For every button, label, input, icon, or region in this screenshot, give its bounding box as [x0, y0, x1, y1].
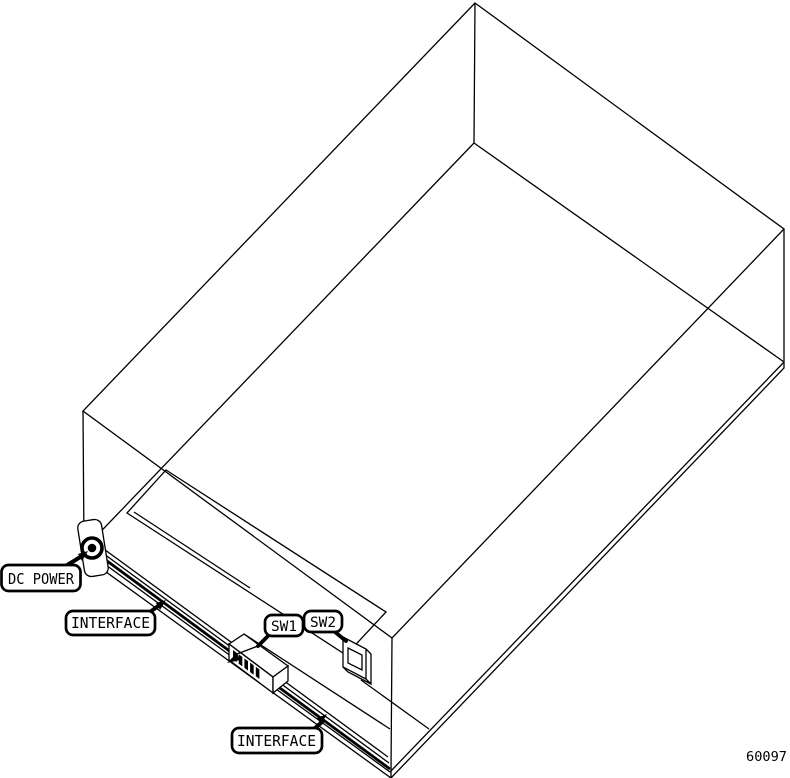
callout-label: INTERFACE	[237, 732, 316, 750]
callout-interface-bottom: INTERFACE	[232, 714, 327, 753]
dc-power-jack-pin	[88, 544, 97, 553]
bottom-detail-line	[361, 680, 429, 729]
recess-panel-outline	[127, 470, 386, 655]
enclosure-wireframe	[83, 3, 784, 778]
switch-sw2	[343, 637, 371, 684]
callout-dc-power: DC POWER	[2, 551, 89, 591]
enclosure-vertical-edges	[83, 3, 784, 772]
callout-sw2: SW2	[304, 611, 346, 641]
callout-label: INTERFACE	[71, 614, 150, 632]
figure-number: 60097	[746, 750, 787, 765]
enclosure-top-face	[83, 3, 784, 638]
base-plate-edges	[84, 362, 784, 778]
isometric-diagram: DC POWER INTERFACE SW1 SW2 I	[0, 0, 790, 778]
figure-page: DC POWER INTERFACE SW1 SW2 I	[0, 0, 790, 778]
callout-label: SW2	[310, 615, 336, 631]
enclosure-bottom-face	[84, 143, 784, 772]
callout-label: SW1	[271, 619, 297, 635]
callout-leader	[258, 636, 268, 646]
recess-panel-lip	[134, 512, 250, 588]
callout-label: DC POWER	[8, 570, 75, 588]
callout-leader	[335, 632, 346, 641]
